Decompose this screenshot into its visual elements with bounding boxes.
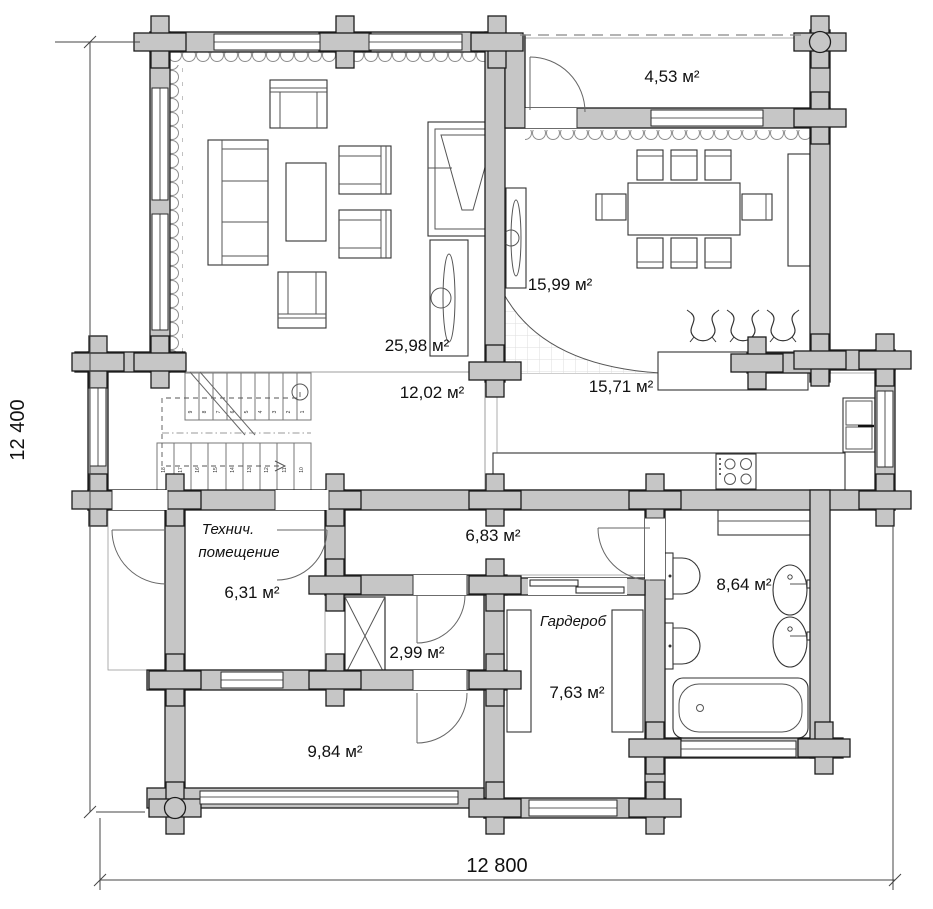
bath-area-label: 8,64 м² [716,575,771,594]
bath-shelf [718,509,810,535]
armchair-1 [339,146,391,194]
wall [810,30,830,382]
round-log-column [165,798,186,819]
step-number: 14 [230,467,236,473]
window [152,214,168,330]
armchair-2 [339,210,391,258]
wardrobe-area-label: 7,63 м² [549,683,604,702]
cabinet-dining [503,188,526,288]
closet-door [413,575,467,643]
window [681,741,796,757]
porch-area-label: 4,53 м² [644,67,699,86]
bar-stool [687,310,719,342]
stove [716,454,756,489]
step-number: 8 [202,410,208,413]
step-number: 5 [244,410,250,413]
step-number: 3 [272,410,278,413]
sideboard [788,154,810,266]
window [214,34,320,50]
dining-area-label: 15,99 м² [528,275,593,294]
dimension-bottom: 12 800 [466,855,527,877]
round-log-column [810,32,831,53]
window [369,34,462,50]
step-number: 9 [188,410,194,413]
step-number: 10 [299,467,305,473]
toilet [664,553,700,599]
kitchen-area-label: 15,71 м² [589,377,654,396]
corridor-area-label: 6,83 м² [465,526,520,545]
furniture [208,80,875,738]
sofa [208,140,268,265]
shaft [345,597,385,675]
chair-bottom [278,272,326,328]
fridge [843,398,875,452]
step-number: 6 [230,410,236,413]
window [90,388,106,466]
dining-table [628,183,740,235]
bathtub [673,678,808,738]
step-number: 16 [195,467,201,473]
window [651,110,763,126]
tech-room-name: помещение [198,544,279,561]
wardrobe-sliding-door [528,578,627,595]
stair-break-line [190,372,255,435]
coffee-table [286,163,326,241]
bar-stool [767,310,799,342]
corridor-left-strip-floor [108,510,165,670]
window [877,391,893,467]
tech-door-right [275,490,329,580]
hall-area-label: 12,02 м² [400,383,465,402]
entry-door [525,57,585,128]
kitchen-counter [493,453,845,490]
step-number: 7 [216,410,222,413]
wardrobe-unit-right [612,610,643,732]
wardrobe-name: Гардероб [540,613,607,630]
wall [810,490,830,758]
sink [773,617,812,667]
step-number: 2 [286,410,292,413]
toilet [664,623,700,669]
wall [485,32,505,382]
step-number: 1 [300,410,306,413]
window [152,88,168,200]
chair-top [270,80,327,128]
step-number: 17 [178,467,184,473]
step-number: 15 [213,467,219,473]
step-number: 12 [264,467,270,473]
bedroom-door [413,670,467,743]
step-number: 11 [282,467,288,472]
tech-area-label: 6,31 м² [224,583,279,602]
sink [773,565,812,615]
step-number: 18 [161,467,167,473]
dimension-left: 12 400 [7,399,29,460]
window [529,800,617,816]
tech-room-name: Технич. [202,521,254,538]
living-area-label: 25,98 м² [385,336,450,355]
window-band [200,791,458,804]
step-number: 13 [247,467,253,473]
staircase: 1 2 3 4 5 6 7 8 9 10 11 12 13 14 15 16 1… [157,372,311,490]
bedroom-area-label: 9,84 м² [307,742,362,761]
tech-door-left [112,490,168,584]
window [221,672,283,688]
bathroom-door [598,518,665,580]
closet-area-label: 2,99 м² [389,643,444,662]
floor-plan: 1 2 3 4 5 6 7 8 9 10 11 12 13 14 15 16 1… [0,0,933,909]
step-number: 4 [258,410,264,413]
stair-walk-line [162,392,300,466]
